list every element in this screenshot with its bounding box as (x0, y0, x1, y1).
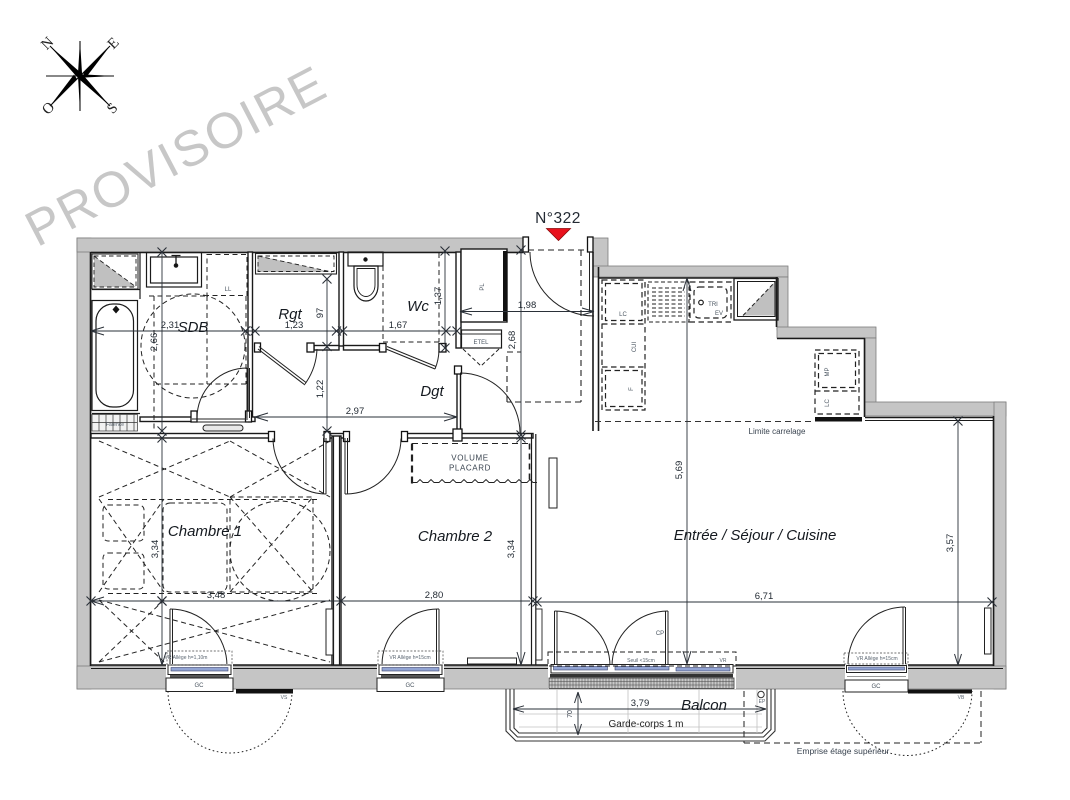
svg-text:Balcon: Balcon (681, 697, 727, 714)
svg-text:GC: GC (872, 684, 882, 690)
svg-text:VOLUME: VOLUME (451, 454, 488, 463)
svg-text:Faïence: Faïence (106, 422, 124, 428)
svg-text:3,34: 3,34 (150, 540, 161, 559)
svg-text:Dgt: Dgt (420, 383, 444, 400)
svg-text:F: F (629, 387, 635, 391)
svg-text:Emprise étage supérieur: Emprise étage supérieur (797, 746, 890, 756)
svg-text:1,22: 1,22 (315, 380, 326, 399)
svg-text:VR Allège h=15cm: VR Allège h=15cm (389, 655, 430, 661)
svg-text:VB: VB (958, 695, 965, 701)
svg-text:Rgt: Rgt (278, 306, 302, 323)
svg-text:VR Allège h=1,10m: VR Allège h=1,10m (165, 655, 208, 661)
svg-text:CUI: CUI (632, 342, 638, 353)
svg-text:LC: LC (825, 398, 831, 406)
svg-text:3,79: 3,79 (631, 698, 650, 709)
svg-text:Garde-corps 1 m: Garde-corps 1 m (608, 719, 683, 730)
svg-text:6,71: 6,71 (755, 591, 774, 602)
svg-text:70: 70 (567, 710, 574, 718)
svg-text:ETEL: ETEL (473, 340, 489, 346)
svg-text:3,34: 3,34 (506, 540, 517, 559)
svg-text:3,48: 3,48 (207, 590, 226, 601)
svg-text:CP: CP (656, 631, 664, 637)
svg-text:Chambre 1: Chambre 1 (168, 523, 242, 540)
svg-text:VS: VS (281, 695, 288, 701)
svg-text:Entrée / Séjour / Cuisine: Entrée / Séjour / Cuisine (674, 527, 837, 544)
svg-text:3,57: 3,57 (945, 534, 956, 553)
svg-text:PL: PL (480, 283, 486, 291)
svg-text:EP: EP (759, 699, 766, 705)
svg-text:1,67: 1,67 (389, 320, 408, 331)
svg-text:LC: LC (619, 312, 627, 318)
svg-text:2,68: 2,68 (507, 331, 518, 350)
svg-text:PLACARD: PLACARD (449, 464, 491, 473)
svg-text:N°322: N°322 (535, 210, 581, 227)
svg-text:MP: MP (825, 368, 831, 377)
svg-text:EV: EV (715, 311, 723, 317)
svg-text:5,69: 5,69 (674, 461, 685, 480)
svg-text:TRI: TRI (708, 302, 718, 308)
svg-text:Wc: Wc (407, 298, 429, 315)
svg-text:GC: GC (195, 683, 205, 689)
svg-text:Chambre 2: Chambre 2 (418, 528, 493, 545)
svg-text:GC: GC (406, 683, 416, 689)
svg-text:2,31: 2,31 (161, 320, 180, 331)
svg-text:Seuil <15cm: Seuil <15cm (627, 658, 655, 664)
svg-text:2,66: 2,66 (149, 333, 160, 352)
svg-text:VR Allège h=15cm: VR Allège h=15cm (856, 656, 897, 662)
svg-text:97: 97 (315, 308, 326, 319)
svg-text:1,37: 1,37 (433, 287, 444, 306)
svg-text:LL: LL (225, 287, 232, 293)
svg-text:2,80: 2,80 (425, 590, 444, 601)
svg-text:2,97: 2,97 (346, 406, 365, 417)
svg-text:Limite carrelage: Limite carrelage (749, 427, 806, 436)
svg-text:SDB: SDB (178, 319, 209, 336)
svg-text:VR: VR (720, 658, 727, 664)
svg-text:1,98: 1,98 (518, 300, 537, 311)
